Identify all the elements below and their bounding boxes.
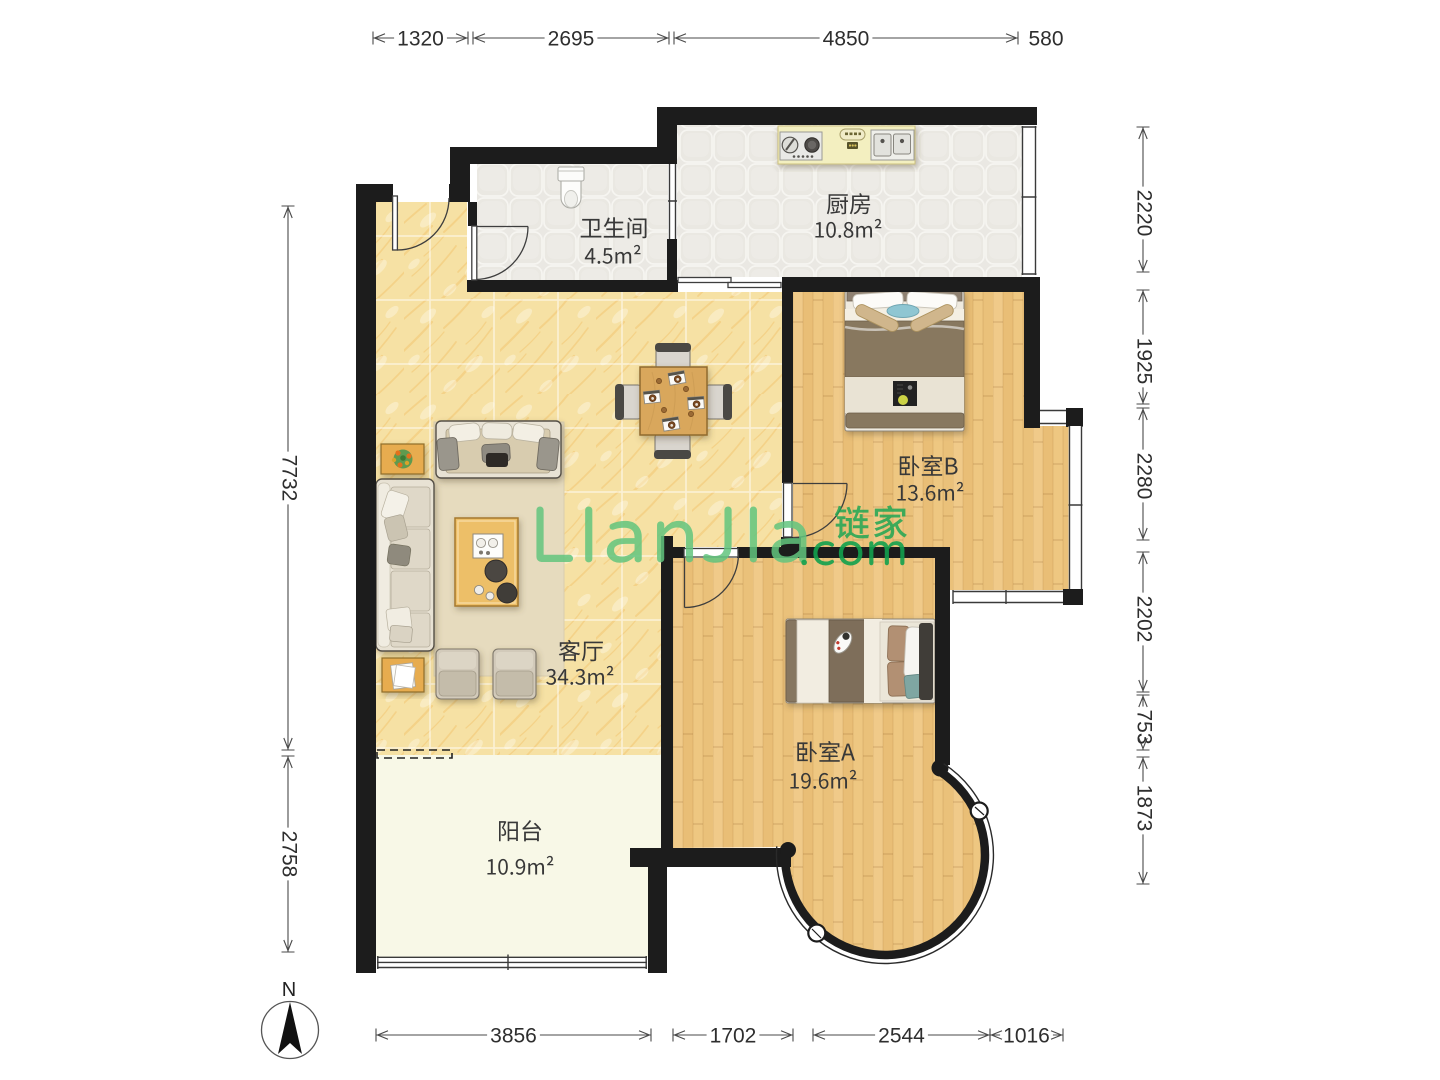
svg-text:2758: 2758 [277,831,300,878]
svg-text:1320: 1320 [397,28,444,51]
svg-text:753: 753 [1132,709,1155,744]
svg-text:2220: 2220 [1132,190,1155,237]
svg-text:580: 580 [1028,28,1063,51]
svg-text:2280: 2280 [1132,453,1155,500]
svg-text:2202: 2202 [1132,596,1155,643]
svg-text:4850: 4850 [823,28,870,51]
svg-text:3856: 3856 [490,1025,537,1048]
svg-text:1702: 1702 [710,1025,757,1048]
svg-text:1925: 1925 [1132,338,1155,385]
svg-text:2695: 2695 [548,28,595,51]
svg-text:N: N [282,979,296,1001]
svg-text:1016: 1016 [1003,1025,1050,1048]
svg-text:2544: 2544 [878,1025,925,1048]
svg-text:7732: 7732 [277,455,300,502]
svg-text:1873: 1873 [1132,785,1155,832]
